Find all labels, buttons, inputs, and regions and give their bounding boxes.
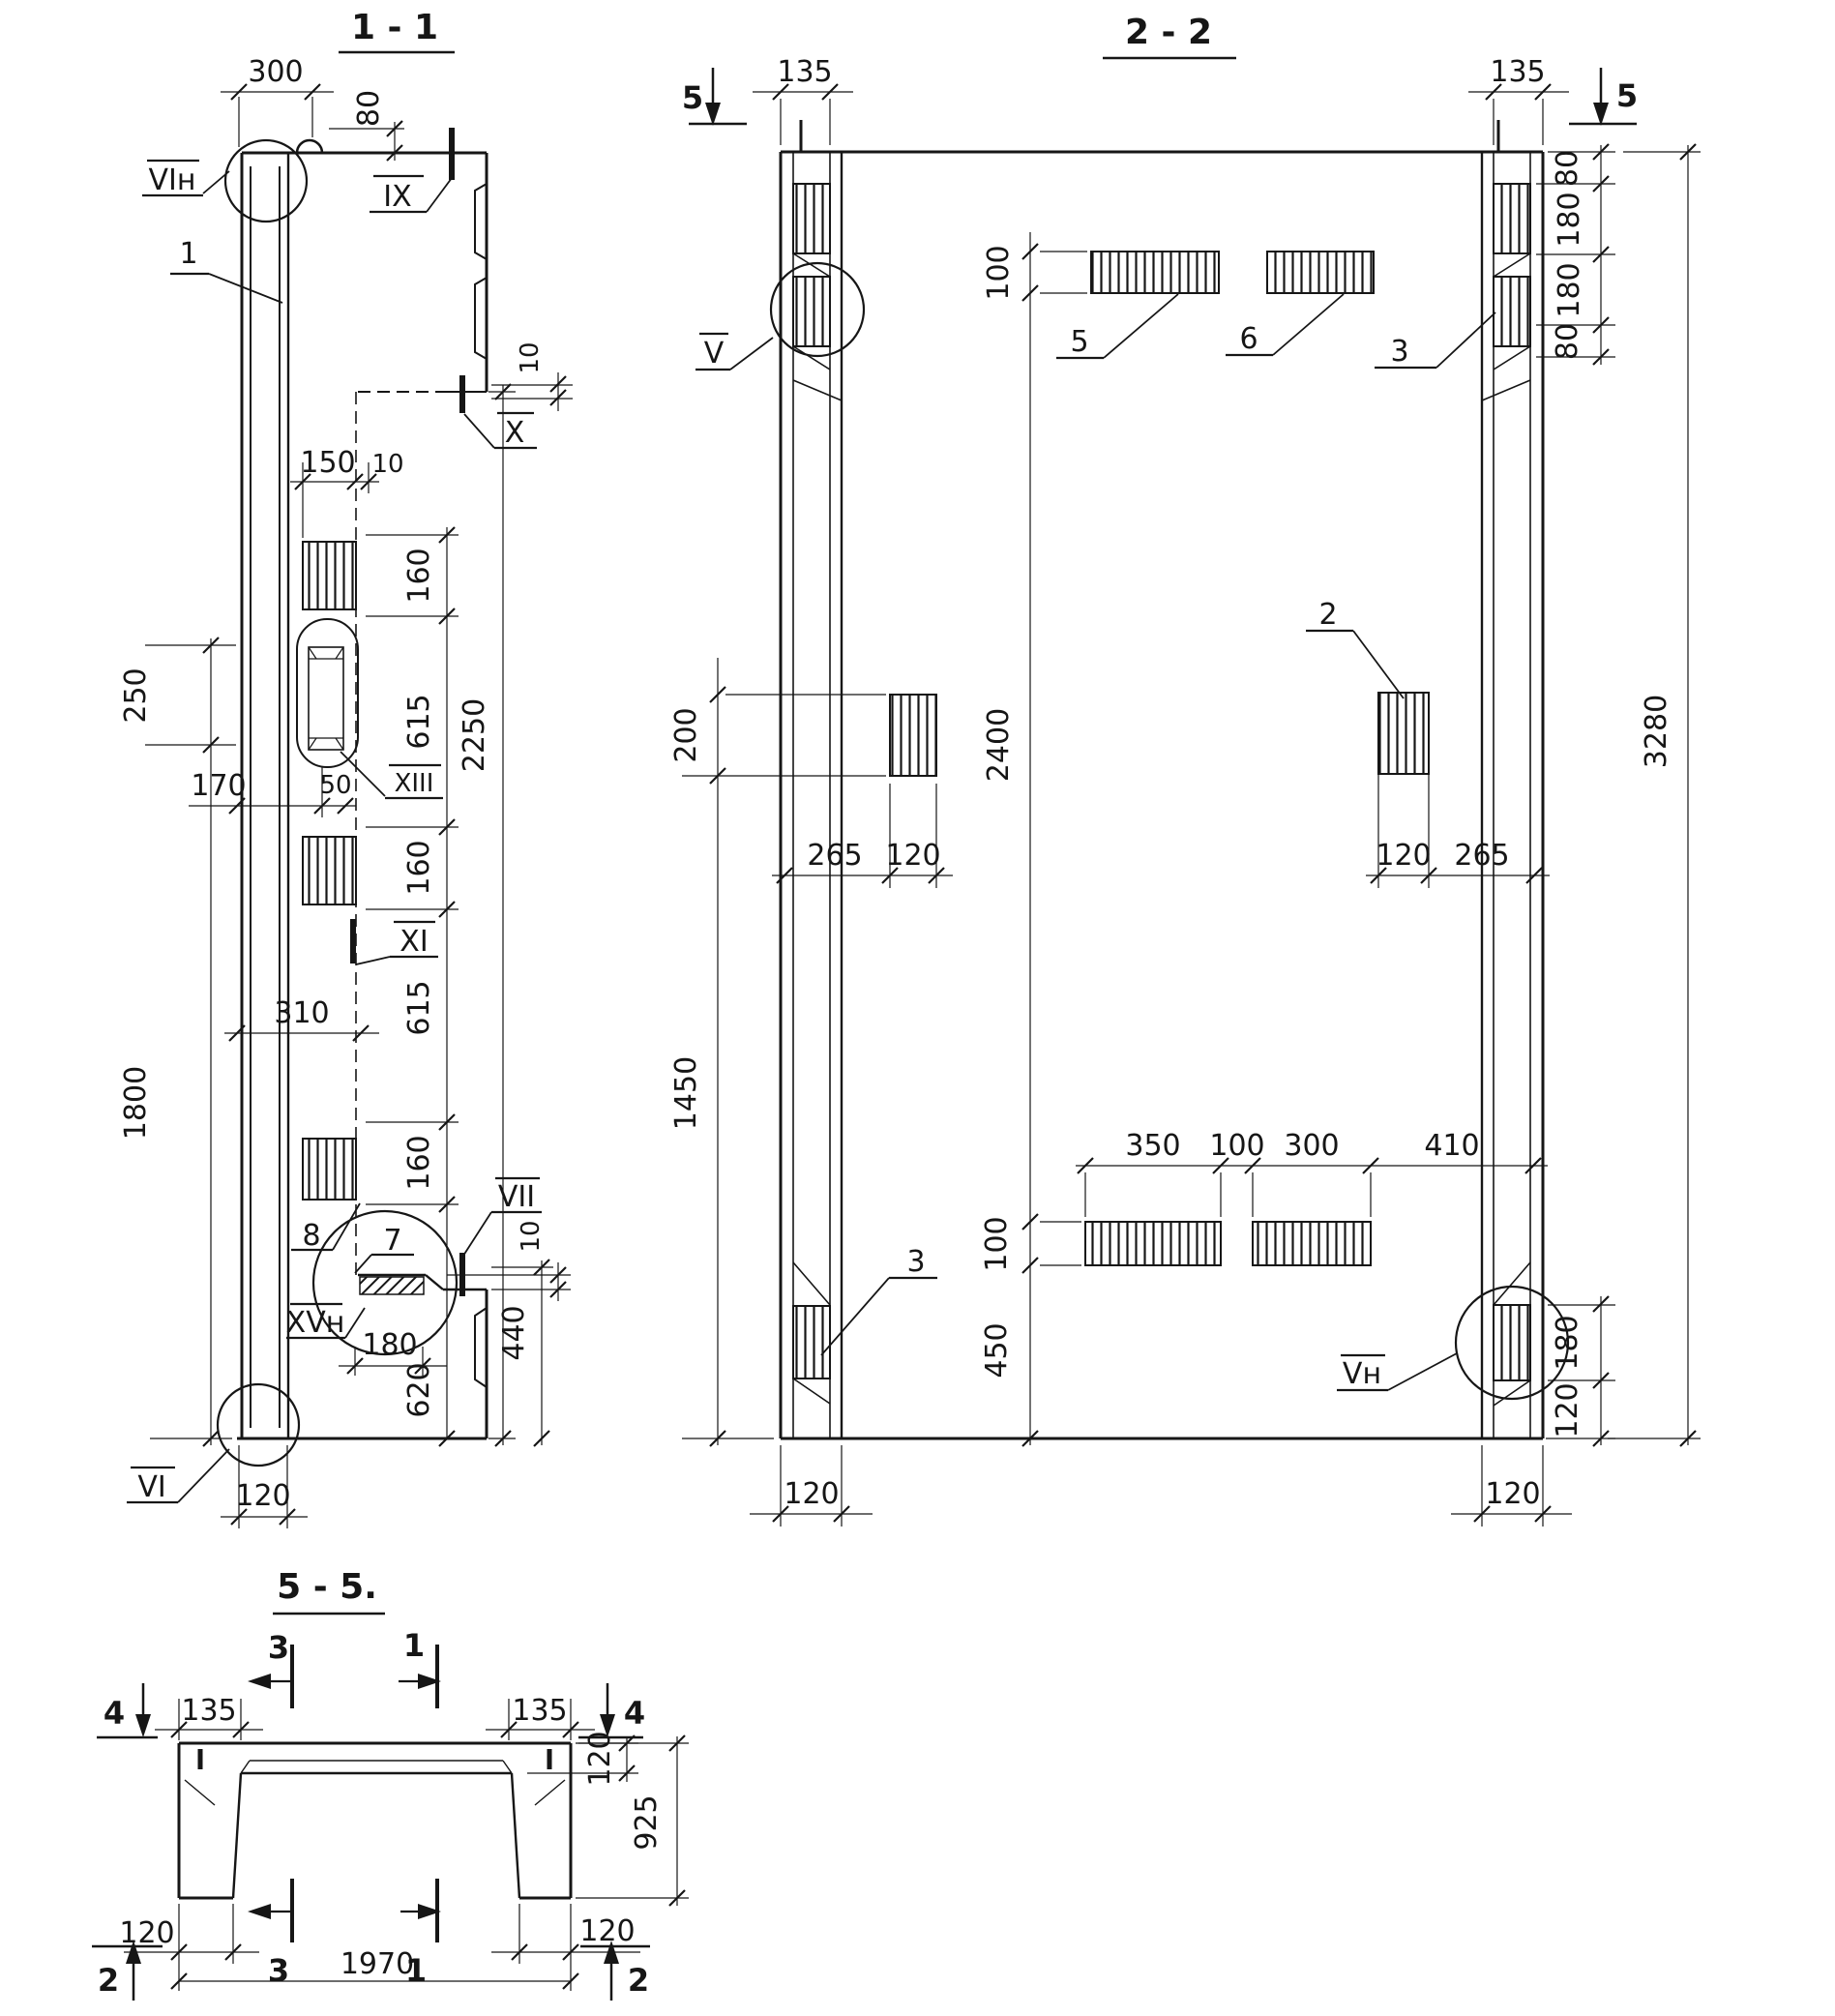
marker-4-left: 4 — [104, 1695, 125, 1732]
panel-outline-1-1 — [237, 140, 487, 1438]
label-8: 8 — [302, 1219, 320, 1253]
rib-core — [793, 184, 830, 253]
label-lines-1-1 — [127, 161, 542, 1502]
dim-450: 450 — [980, 1322, 1014, 1378]
edge-slot-2 — [475, 278, 487, 359]
cut-label-3-bottom: 3 — [268, 1952, 289, 1989]
label-vin: VIн — [149, 163, 196, 197]
dim-120-right-stack: 120 — [1551, 1382, 1584, 1438]
dim-265-left: 265 — [807, 839, 862, 873]
label-ix: IX — [383, 180, 411, 214]
corner-bars — [200, 1749, 549, 1769]
bearing-strip — [360, 1277, 424, 1294]
dim-1800: 1800 — [119, 1066, 153, 1140]
dim-180a: 180 — [1553, 192, 1586, 247]
rib-core — [793, 277, 830, 346]
rib-core — [1494, 1305, 1530, 1380]
chamfer-marks — [185, 1780, 565, 1805]
drawing-sheet: 1 - 1 — [0, 0, 1835, 2016]
dim-180: 180 — [362, 1328, 417, 1362]
dim-440: 440 — [497, 1305, 531, 1360]
section-1-1-title: 1 - 1 — [351, 8, 438, 47]
dim-100-top: 100 — [982, 245, 1016, 300]
dim-250: 250 — [119, 667, 153, 723]
label-vii: VII — [498, 1180, 535, 1214]
rebar-lines — [251, 166, 280, 1428]
cut-label-1-top: 1 — [403, 1627, 425, 1664]
channel-outline-5-5 — [179, 1743, 571, 1898]
rib-tapers-right — [1482, 253, 1530, 1406]
dim-120-bottom-left: 120 — [784, 1477, 839, 1511]
dim-2400: 2400 — [982, 708, 1016, 782]
arrow-left-icon — [248, 1904, 271, 1919]
embed-plate-6 — [1267, 252, 1374, 293]
dim-1970: 1970 — [340, 1947, 414, 1981]
dim-135-left: 135 — [181, 1694, 236, 1728]
cut-label-3-top: 3 — [268, 1629, 289, 1666]
embed-plate — [890, 695, 936, 776]
dim-180b: 180 — [1553, 262, 1586, 317]
dim-120-left: 120 — [885, 839, 940, 873]
section-2-2: 2 - 2 — [669, 13, 1701, 1527]
embed-plate — [1253, 1222, 1371, 1265]
dim-10b: 10 — [371, 450, 403, 479]
edge-slot-3 — [475, 1308, 487, 1387]
keyway-slot — [297, 619, 358, 767]
dim-310: 310 — [274, 996, 329, 1030]
section-1-1: 1 - 1 — [119, 8, 573, 1528]
label-vi: VI — [137, 1470, 165, 1504]
label-x: X — [505, 416, 525, 450]
arrow-down-icon — [705, 103, 721, 126]
label-xiii: XIII — [395, 769, 434, 798]
edge-slot-1 — [475, 184, 487, 259]
label-xvn: XVн — [286, 1306, 345, 1340]
dim-170: 170 — [191, 769, 246, 803]
dim-120-top: 120 — [583, 1731, 617, 1786]
dim-135-right: 135 — [1490, 55, 1545, 89]
embed-plate-5 — [1091, 252, 1219, 293]
dim-135-left: 135 — [777, 55, 832, 89]
dim-265-right: 265 — [1454, 839, 1509, 873]
dim-120-bottom-right: 120 — [579, 1914, 635, 1948]
section-marker-5-right: 5 — [1569, 68, 1638, 126]
dim-615a: 615 — [402, 694, 436, 749]
dim-100-bottom: 100 — [980, 1216, 1014, 1271]
dim-3280: 3280 — [1640, 695, 1673, 768]
section-marker-2-right: 2 — [580, 1941, 650, 2001]
dim-160a: 160 — [402, 548, 436, 603]
section-5-5: 5 - 5. 4 4 — [92, 1567, 689, 2001]
dim-300: 300 — [1284, 1129, 1339, 1163]
hatch-blocks-2-2 — [793, 184, 1530, 1380]
dim-350: 350 — [1125, 1129, 1180, 1163]
section-5-5-title: 5 - 5. — [277, 1567, 377, 1607]
section-marker-4-left: 4 — [97, 1683, 158, 1737]
rib-core — [793, 1306, 830, 1379]
label-vn: Vн — [1343, 1357, 1381, 1391]
dim-120-bottom-right: 120 — [1485, 1477, 1540, 1511]
label-v: V — [704, 337, 725, 371]
dim-180-right: 180 — [1551, 1315, 1584, 1370]
dim-1450: 1450 — [669, 1056, 703, 1130]
rib-tapers-left — [793, 253, 842, 1404]
section-2-2-title: 2 - 2 — [1125, 13, 1212, 52]
dim-50: 50 — [319, 771, 351, 800]
label-xi: XI — [400, 925, 428, 959]
arrow-left-icon — [248, 1674, 271, 1689]
dim-160b: 160 — [402, 840, 436, 895]
label-3-top: 3 — [1390, 335, 1408, 369]
dim-10a: 10 — [516, 341, 545, 373]
rib-core — [1494, 277, 1530, 346]
label-1: 1 — [179, 237, 197, 271]
embed-plate — [303, 1139, 356, 1200]
detail-circles-1-1 — [218, 140, 457, 1466]
embed-plate — [1085, 1222, 1221, 1265]
dim-100-mid: 100 — [1209, 1129, 1264, 1163]
section-marker-5-left: 5 — [682, 68, 747, 126]
top-stubs — [801, 120, 1498, 152]
marker-5-left: 5 — [682, 79, 703, 116]
engineering-drawing: 1 - 1 — [0, 0, 1835, 2016]
label-3-bottom: 3 — [906, 1245, 925, 1279]
dim-150: 150 — [300, 446, 355, 480]
marker-2-left: 2 — [98, 1962, 119, 1999]
cut-marks-3-1: 3 1 3 1 — [248, 1627, 441, 1989]
dim-120-bottom-left: 120 — [119, 1916, 174, 1950]
dim-925: 925 — [630, 1794, 664, 1850]
marker-2-right: 2 — [628, 1962, 649, 1999]
label-5: 5 — [1070, 325, 1088, 359]
dim-200: 200 — [669, 707, 703, 762]
lifting-loop — [297, 140, 322, 153]
arrow-down-icon — [135, 1714, 151, 1737]
embed-plate — [303, 542, 356, 609]
dim-620: 620 — [402, 1362, 436, 1417]
dim-615b: 615 — [402, 980, 436, 1035]
dim-lines-2-2 — [682, 92, 1701, 1527]
label-7: 7 — [383, 1224, 401, 1258]
marker-4-right: 4 — [624, 1695, 645, 1732]
embed-plate — [303, 837, 356, 904]
dim-410: 410 — [1424, 1129, 1479, 1163]
label-2: 2 — [1318, 598, 1337, 632]
arrow-down-icon — [1593, 103, 1609, 126]
dim-300: 300 — [248, 55, 303, 89]
dim-160c: 160 — [402, 1135, 436, 1190]
marker-5-right: 5 — [1616, 77, 1638, 114]
rib-core — [1494, 184, 1530, 253]
dim-120: 120 — [235, 1479, 290, 1513]
dim-80: 80 — [352, 90, 386, 127]
dim-135-right: 135 — [512, 1694, 567, 1728]
dim-ticks-2-2 — [710, 84, 1696, 1522]
dim-80a: 80 — [1551, 150, 1584, 187]
embed-plate-2 — [1378, 693, 1429, 774]
label-6: 6 — [1239, 322, 1258, 356]
dim-80b: 80 — [1551, 323, 1584, 360]
dim-2250: 2250 — [458, 698, 491, 772]
dim-10c: 10 — [517, 1220, 546, 1252]
dim-120-right: 120 — [1376, 839, 1431, 873]
